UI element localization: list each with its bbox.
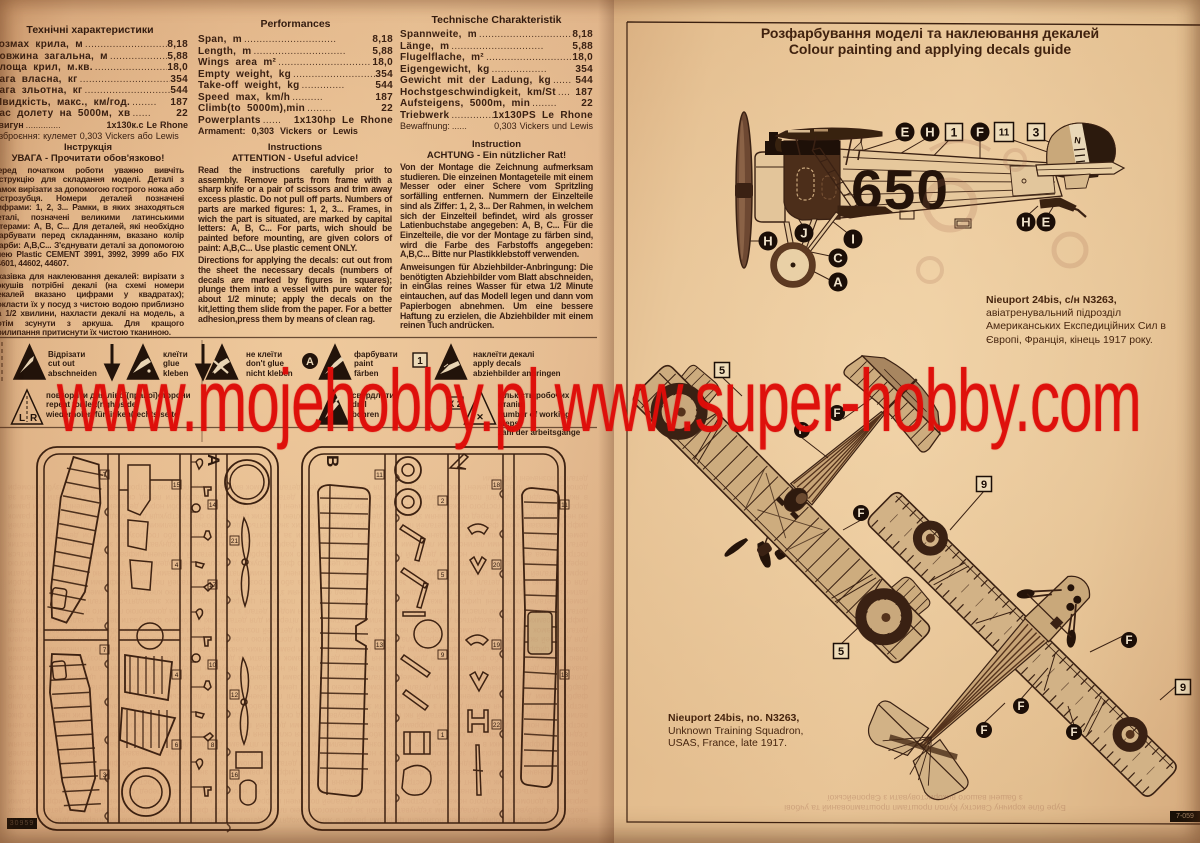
svg-text:J: J (800, 226, 807, 241)
svg-text:1: 1 (951, 125, 958, 139)
svg-text:5: 5 (838, 646, 844, 658)
svg-text:F: F (980, 725, 987, 737)
svg-text:F: F (857, 508, 864, 520)
svg-text:F: F (1017, 701, 1024, 713)
svg-text:R: R (30, 413, 38, 424)
svg-text:E: E (901, 125, 910, 140)
svg-text:E: E (1042, 215, 1051, 230)
svg-text:F: F (976, 125, 984, 140)
svg-text:L: L (19, 413, 25, 424)
svg-text:11: 11 (999, 128, 1010, 139)
svg-text:H: H (763, 234, 772, 249)
svg-text:N: N (1074, 135, 1082, 146)
svg-text:F: F (1070, 727, 1077, 739)
svg-text:A: A (833, 275, 843, 290)
svg-text:9: 9 (1180, 682, 1186, 694)
svg-text:H: H (1021, 215, 1030, 230)
svg-text:3: 3 (1033, 125, 1040, 139)
svg-text:F: F (1125, 635, 1132, 647)
svg-text:H: H (925, 125, 934, 140)
svg-text:I: I (851, 232, 855, 247)
svg-text:9: 9 (981, 479, 987, 491)
svg-text:C: C (833, 251, 843, 266)
